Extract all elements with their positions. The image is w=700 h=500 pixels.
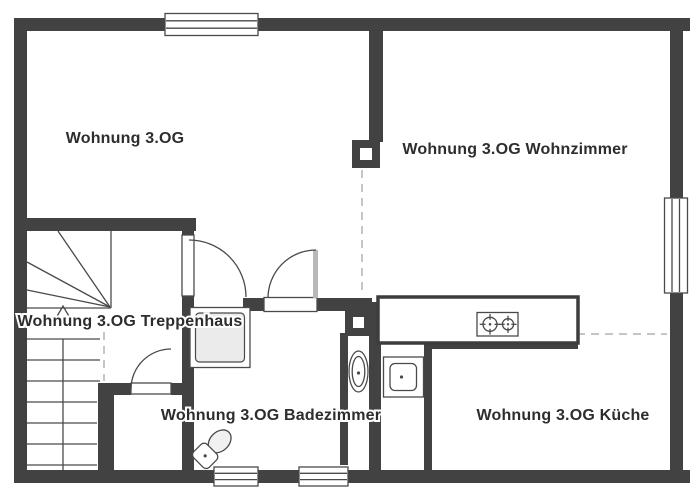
wall-storage-top-left [98,383,131,395]
wall-left [14,18,27,483]
room-areas [27,31,670,470]
window-icon [299,467,348,486]
floor-plan: Wohnung 3.OG Wohnung 3.OG Wohnzimmer Woh… [0,0,700,500]
room-label-living-room: Wohnung 3.OG Wohnzimmer [402,141,627,158]
wall-kitchen-inner-left [424,341,432,470]
wall-stairwell-top [27,218,196,231]
wall-storage-left [98,383,114,470]
door-leaf [313,250,318,298]
wall-bathroom-right [340,333,348,465]
wall-bottom [14,470,690,483]
room-label-apartment-hall: Wohnung 3.OG [66,130,185,147]
stove-icon [477,313,518,337]
floor-plan-page: Wohnung 3.OG Wohnung 3.OG Wohnzimmer Woh… [0,0,700,500]
window-icon [214,467,258,486]
door-swing-icon [264,250,318,312]
wall-living-room-divider [369,31,383,142]
room-apartment-hall-area [27,31,369,218]
window-icon [665,198,688,293]
window-icon [165,14,258,36]
wall-top [14,18,690,31]
wall-storage-top-right [171,383,194,395]
room-label-kitchen: Wohnung 3.OG Küche [476,407,649,424]
door-swing-icon [182,235,246,297]
shaft-icon [345,310,372,336]
room-label-bathroom: Wohnung 3.OG Badezimmer [161,407,381,424]
room-living-room-area [383,31,670,297]
room-label-stairwell: Wohnung 3.OG Treppenhaus [18,313,243,330]
sink-icon [384,357,424,397]
washbasin-icon [349,351,368,392]
shaft-icon [352,140,380,168]
